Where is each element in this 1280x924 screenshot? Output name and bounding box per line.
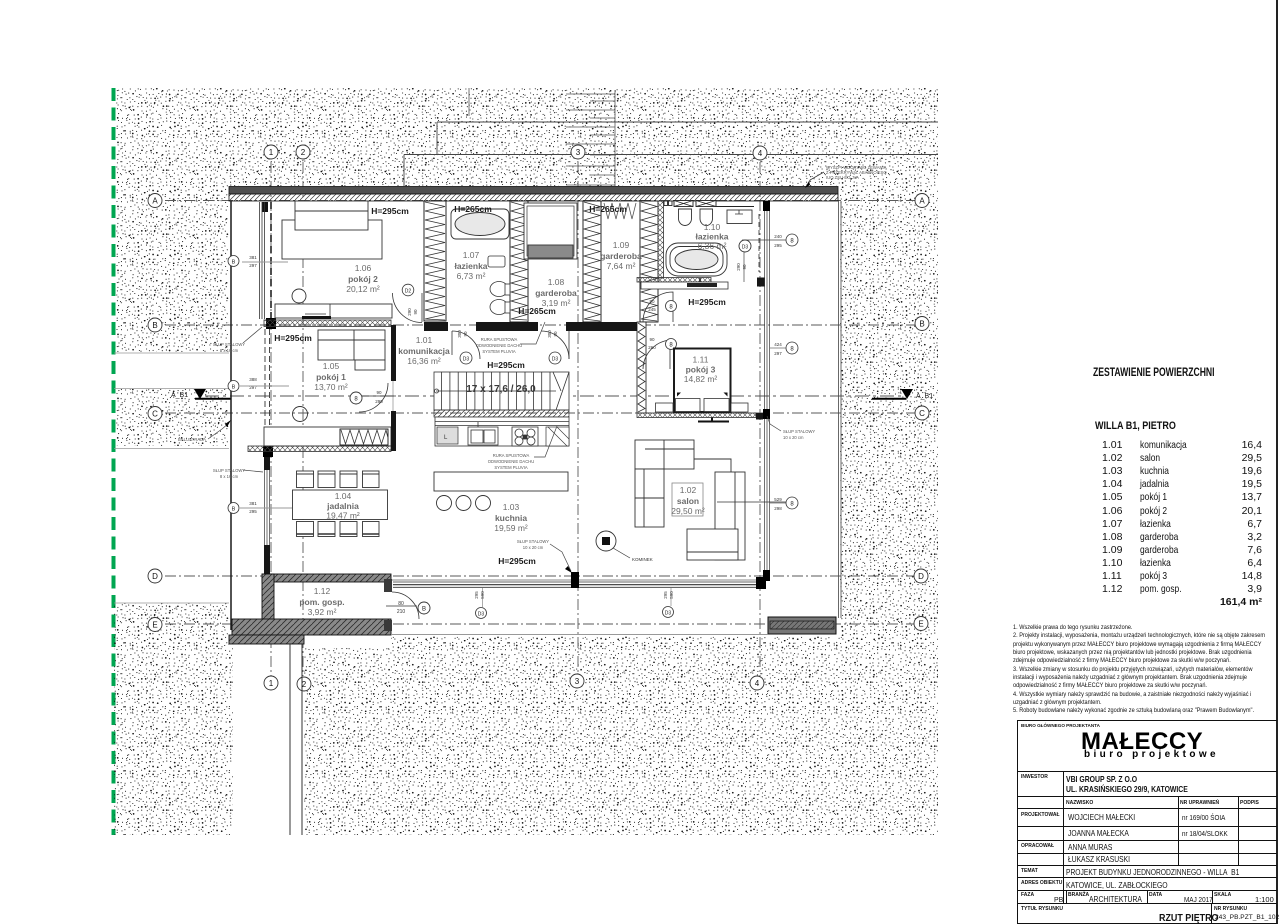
svg-text:H=295cm: H=295cm [487, 360, 525, 370]
svg-text:jadalnia: jadalnia [326, 501, 359, 511]
svg-text:B: B [152, 321, 157, 330]
svg-text:1.10: 1.10 [704, 222, 721, 232]
svg-text:komunikacja: komunikacja [398, 346, 450, 356]
svg-text:1.05: 1.05 [323, 361, 340, 371]
svg-text:90: 90 [376, 390, 382, 395]
svg-text:D3: D3 [463, 357, 470, 363]
svg-text:C: C [152, 410, 158, 419]
svg-text:1: 1 [269, 679, 274, 688]
svg-text:10 x 20 cm: 10 x 20 cm [783, 435, 804, 440]
svg-text:3,92 m²: 3,92 m² [308, 607, 337, 617]
svg-text:B: B [232, 260, 236, 266]
svg-text:295: 295 [663, 591, 668, 599]
svg-text:H=295cm: H=295cm [498, 556, 536, 566]
svg-text:388: 388 [249, 377, 257, 382]
svg-text:17 x 17,6 / 26,0: 17 x 17,6 / 26,0 [466, 384, 536, 395]
svg-text:A_B1: A_B1 [171, 392, 188, 399]
svg-text:1.02: 1.02 [680, 485, 697, 495]
svg-text:ODWODNIENIE DACHU: ODWODNIENIE DACHU [488, 459, 535, 464]
svg-text:6,73 m²: 6,73 m² [457, 271, 486, 281]
svg-text:RURA SPUSTOWA: RURA SPUSTOWA [481, 337, 518, 342]
svg-text:3: 3 [575, 677, 580, 686]
svg-text:B: B [232, 507, 236, 513]
svg-text:90: 90 [553, 331, 558, 337]
svg-text:1.04: 1.04 [335, 491, 352, 501]
svg-text:B: B [422, 607, 426, 613]
svg-text:garderoba: garderoba [535, 288, 577, 298]
svg-text:E: E [152, 621, 157, 630]
svg-text:B: B [232, 385, 236, 391]
svg-text:SŁUP STALOWY: SŁUP STALOWY [783, 429, 815, 434]
svg-text:381: 381 [249, 501, 257, 506]
svg-text:A_B1: A_B1 [916, 393, 933, 400]
svg-text:14,82 m²: 14,82 m² [684, 374, 718, 384]
svg-text:1.06: 1.06 [355, 263, 372, 273]
svg-text:529: 529 [774, 497, 782, 502]
svg-text:pokój 2: pokój 2 [348, 274, 378, 284]
svg-text:19,59 m²: 19,59 m² [494, 523, 528, 533]
svg-text:300: 300 [457, 330, 462, 338]
svg-text:IUO ZSU-EO JVA: IUO ZSU-EO JVA [826, 175, 859, 180]
svg-text:424: 424 [774, 342, 782, 347]
svg-text:pokój 1: pokój 1 [316, 372, 346, 382]
svg-text:7,64 m²: 7,64 m² [607, 261, 636, 271]
svg-text:1.11: 1.11 [693, 355, 709, 365]
svg-text:1.09: 1.09 [613, 240, 630, 250]
svg-text:1.01: 1.01 [416, 335, 433, 345]
svg-text:A: A [152, 197, 158, 206]
svg-text:4: 4 [758, 149, 763, 158]
svg-text:H=265cm: H=265cm [454, 204, 492, 214]
svg-text:SŁUP STALOWY: SŁUP STALOWY [213, 468, 245, 473]
svg-text:10 x 20 cm: 10 x 20 cm [523, 545, 544, 550]
svg-text:BALUSTRADA: BALUSTRADA [178, 437, 206, 442]
svg-text:4: 4 [755, 679, 760, 688]
svg-text:SYSTEM PLUVIA: SYSTEM PLUVIA [482, 349, 515, 354]
svg-text:295: 295 [249, 509, 257, 514]
svg-text:80: 80 [398, 601, 404, 607]
svg-text:E: E [918, 620, 923, 629]
svg-text:KOMINEK: KOMINEK [632, 557, 653, 562]
svg-text:295: 295 [774, 243, 782, 248]
svg-text:260: 260 [648, 345, 656, 350]
svg-text:90: 90 [413, 309, 418, 315]
svg-text:20,12 m²: 20,12 m² [346, 284, 380, 294]
svg-text:SYSTEM PLUVIA: SYSTEM PLUVIA [494, 465, 527, 470]
svg-text:2: 2 [302, 680, 307, 689]
svg-text:łazienka: łazienka [695, 232, 728, 242]
svg-text:590: 590 [480, 591, 485, 599]
svg-text:90: 90 [649, 337, 655, 342]
svg-text:pom. gosp.: pom. gosp. [299, 597, 344, 607]
svg-text:A: A [919, 197, 925, 206]
svg-text:90: 90 [649, 299, 655, 304]
svg-text:381: 381 [249, 255, 257, 260]
svg-text:2: 2 [301, 148, 306, 157]
svg-text:1.08: 1.08 [548, 277, 565, 287]
svg-text:290: 290 [375, 399, 383, 404]
svg-text:245: 245 [648, 307, 656, 312]
svg-text:297: 297 [774, 351, 782, 356]
svg-text:H=295cm: H=295cm [274, 333, 312, 343]
svg-text:H=295cm: H=295cm [688, 297, 726, 307]
svg-text:D3: D3 [552, 357, 559, 363]
svg-text:240: 240 [774, 234, 782, 239]
svg-text:1.07: 1.07 [463, 250, 480, 260]
svg-text:RURA SPUSTOWA: RURA SPUSTOWA [493, 453, 530, 458]
svg-text:300: 300 [547, 330, 552, 338]
svg-text:290: 290 [407, 308, 412, 316]
svg-text:H=295cm: H=295cm [371, 206, 409, 216]
svg-text:łazienka: łazienka [454, 261, 487, 271]
svg-text:295: 295 [474, 591, 479, 599]
svg-text:13,70 m²: 13,70 m² [314, 382, 348, 392]
svg-text:90: 90 [742, 264, 747, 270]
svg-text:D: D [918, 572, 924, 581]
svg-text:B: B [919, 320, 924, 329]
svg-text:90: 90 [463, 331, 468, 337]
svg-text:H=265cm: H=265cm [518, 306, 556, 316]
svg-text:1: 1 [269, 148, 274, 157]
svg-text:590: 590 [669, 591, 674, 599]
svg-text:8 x 16 cm: 8 x 16 cm [220, 474, 239, 479]
svg-text:19,47 m²: 19,47 m² [326, 511, 360, 521]
svg-text:D3: D3 [665, 611, 672, 617]
svg-text:3: 3 [576, 148, 581, 157]
svg-text:D3: D3 [478, 612, 485, 618]
svg-text:29,50 m²: 29,50 m² [671, 506, 705, 516]
svg-text:garderoba: garderoba [600, 251, 642, 261]
svg-text:SŁUP STALOWY: SŁUP STALOWY [517, 539, 549, 544]
svg-text:1.03: 1.03 [503, 502, 520, 512]
svg-text:SŁUP STALOWY: SŁUP STALOWY [213, 342, 245, 347]
svg-text:D3: D3 [742, 245, 749, 251]
svg-text:D: D [152, 572, 158, 581]
svg-text:ODWODNIENIE DACHU: ODWODNIENIE DACHU [476, 343, 523, 348]
svg-text:290: 290 [736, 263, 741, 271]
svg-text:16,36 m²: 16,36 m² [407, 356, 441, 366]
svg-text:salon: salon [677, 496, 699, 506]
svg-text:298: 298 [774, 506, 782, 511]
svg-text:kuchnia: kuchnia [495, 513, 527, 523]
svg-text:pokój 3: pokój 3 [686, 365, 716, 375]
svg-text:D2: D2 [405, 289, 412, 295]
svg-text:297: 297 [249, 263, 257, 268]
svg-text:210: 210 [397, 609, 406, 615]
svg-text:H=265cm: H=265cm [589, 204, 627, 214]
svg-text:1.12: 1.12 [314, 586, 331, 596]
svg-text:C: C [919, 409, 925, 418]
svg-text:6,36 m²: 6,36 m² [698, 241, 727, 251]
svg-text:8 x 16 cm: 8 x 16 cm [220, 348, 239, 353]
